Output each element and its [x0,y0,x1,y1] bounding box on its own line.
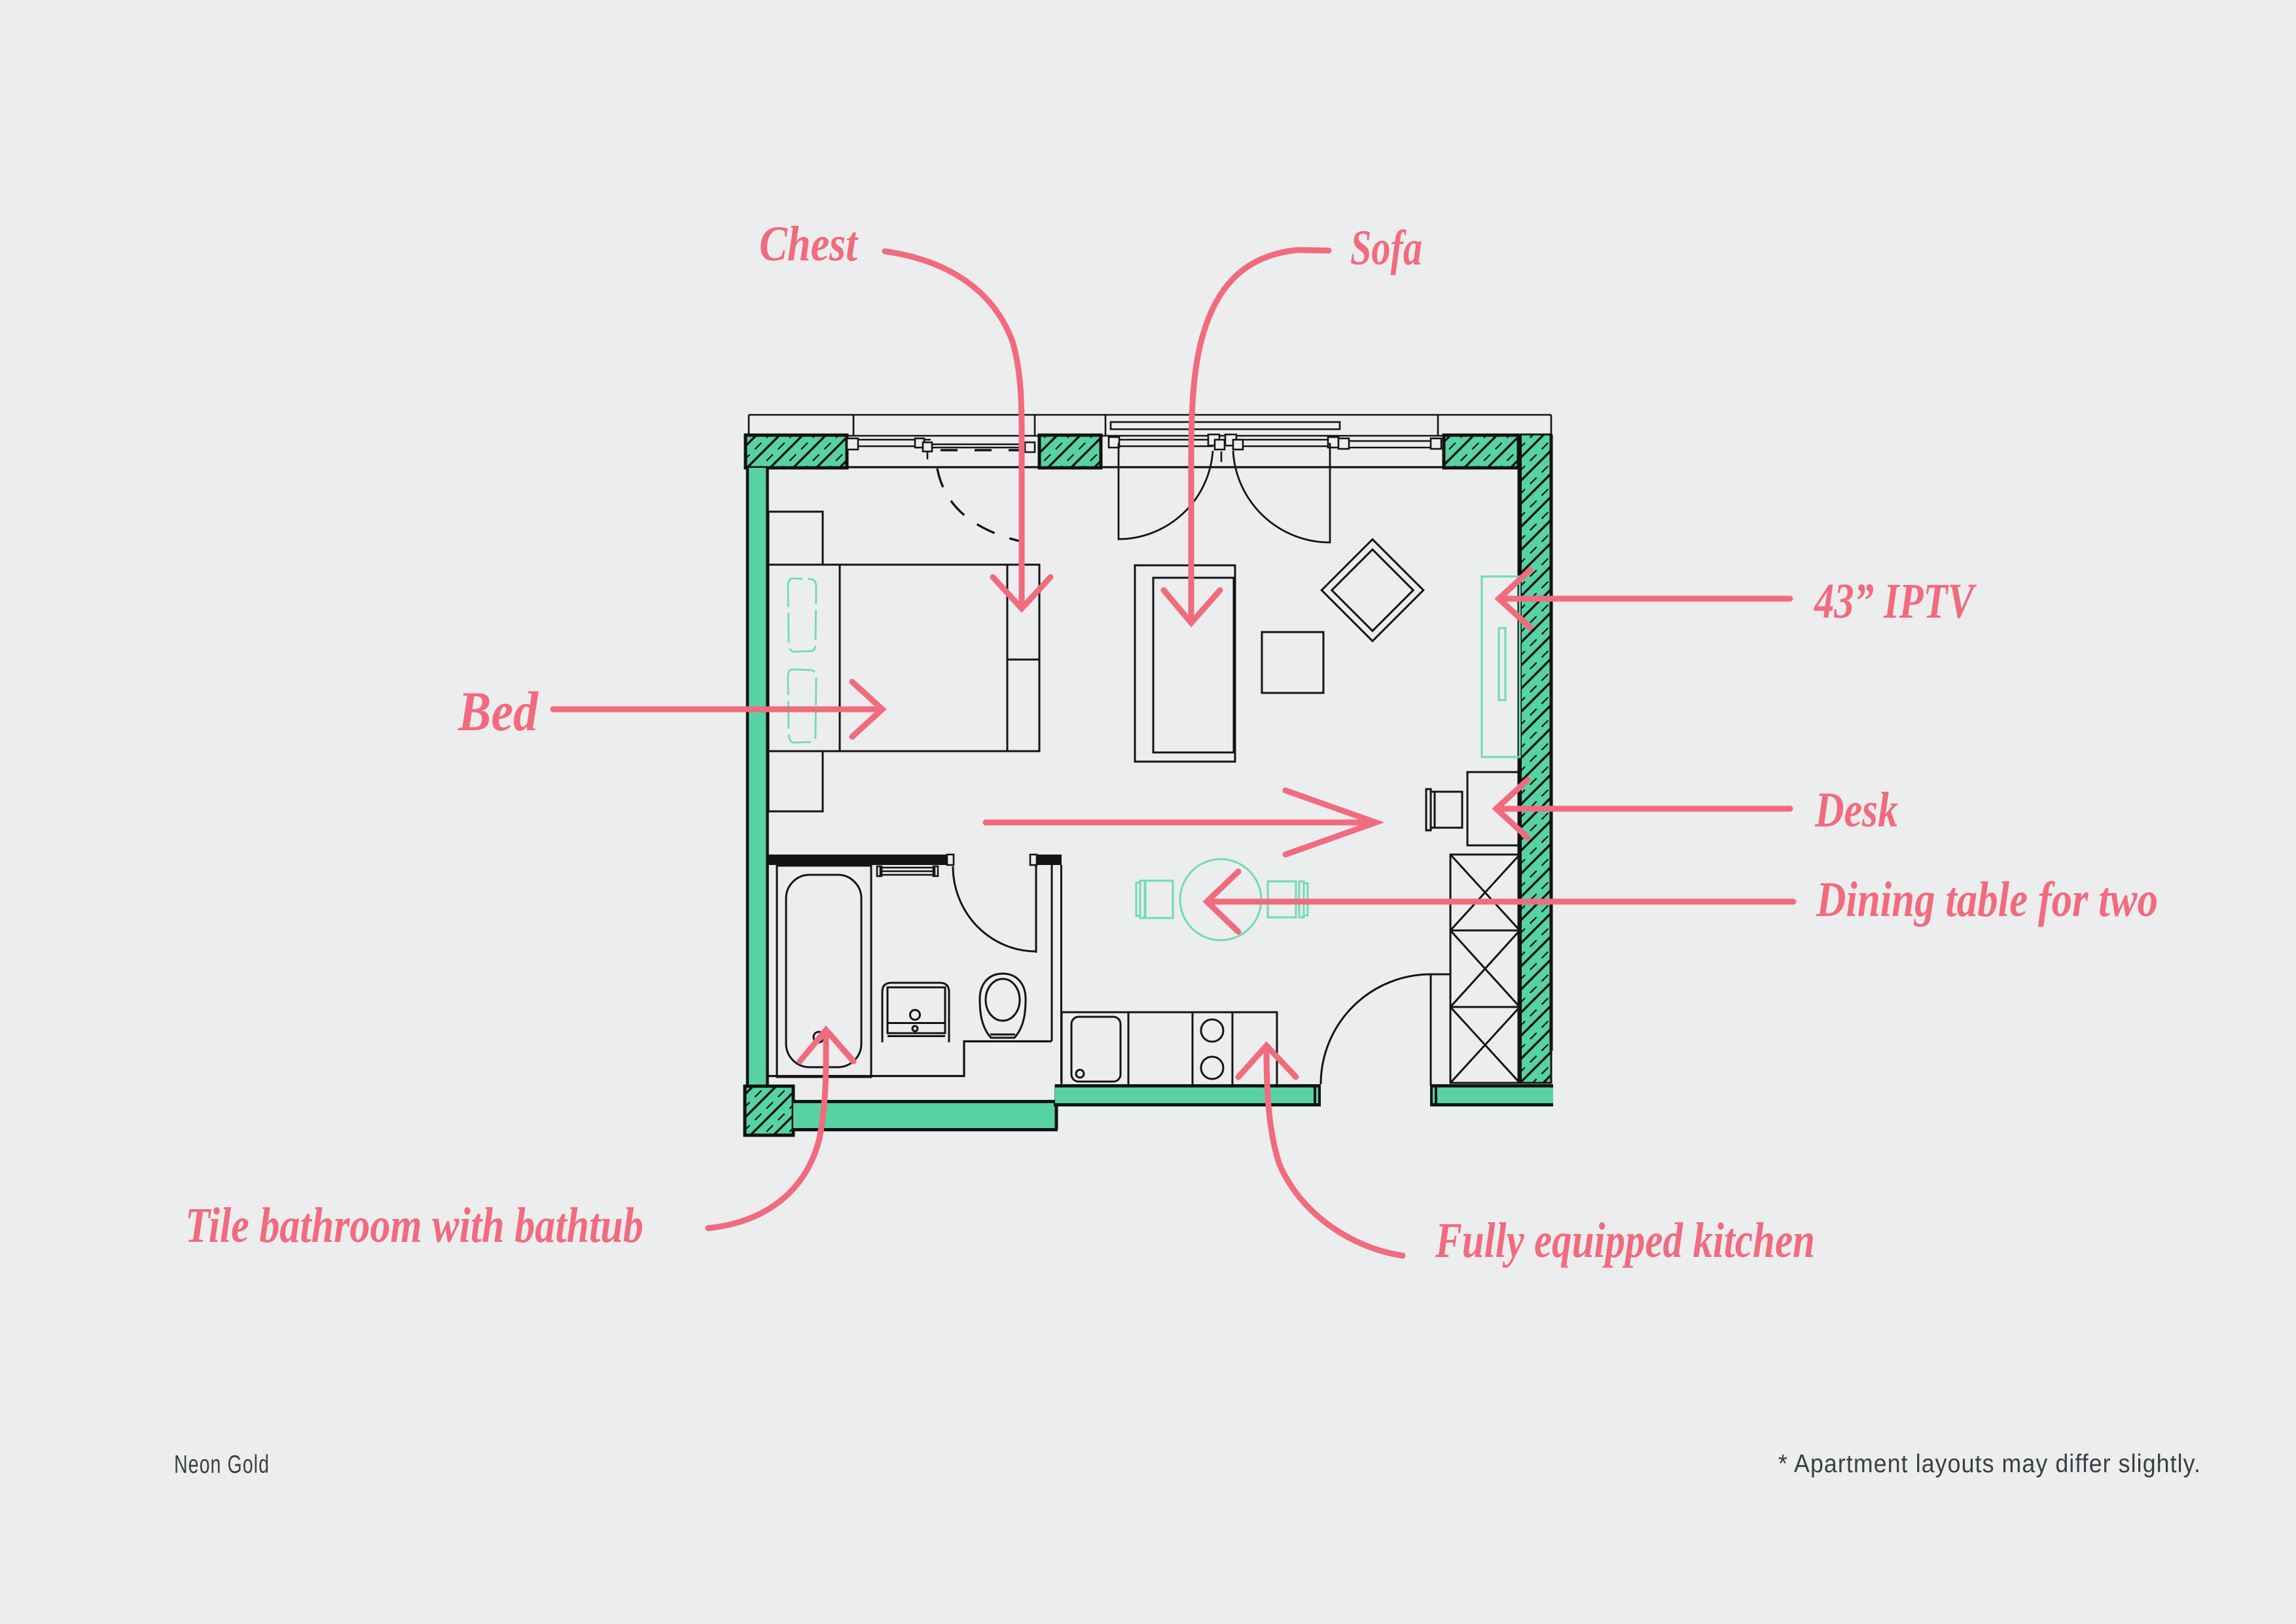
svg-text:Bed: Bed [457,680,539,743]
svg-text:43” IPTV: 43” IPTV [1813,574,1977,629]
svg-text:* Apartment layouts may differ: * Apartment layouts may differ slightly. [1778,1450,2201,1478]
svg-text:Tile bathroom with bathtub: Tile bathroom with bathtub [185,1198,643,1253]
svg-text:Neon Gold: Neon Gold [174,1451,270,1479]
svg-text:Desk: Desk [1814,783,1898,838]
svg-text:Sofa: Sofa [1350,221,1422,275]
svg-text:Chest: Chest [759,217,859,272]
svg-text:Dining table for two: Dining table for two [1816,872,2158,927]
svg-text:Fully equipped kitchen: Fully equipped kitchen [1435,1213,1815,1268]
